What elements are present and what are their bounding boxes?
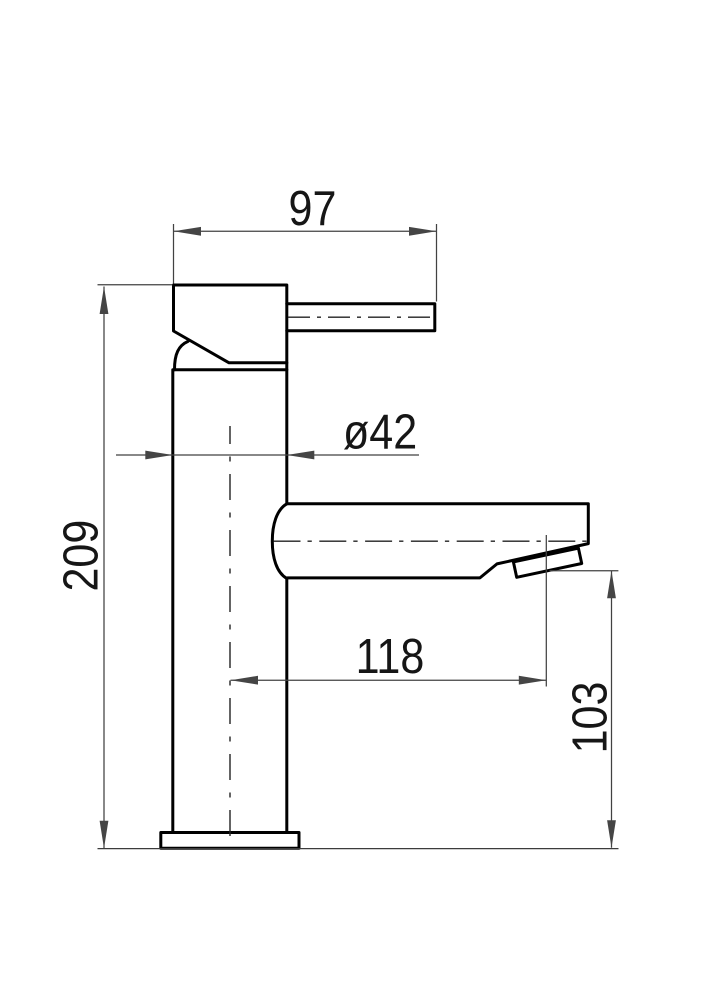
svg-text:ø42: ø42	[343, 404, 417, 459]
svg-text:103: 103	[561, 682, 616, 754]
svg-text:97: 97	[289, 180, 337, 235]
svg-text:118: 118	[356, 628, 425, 683]
svg-text:209: 209	[53, 520, 108, 592]
